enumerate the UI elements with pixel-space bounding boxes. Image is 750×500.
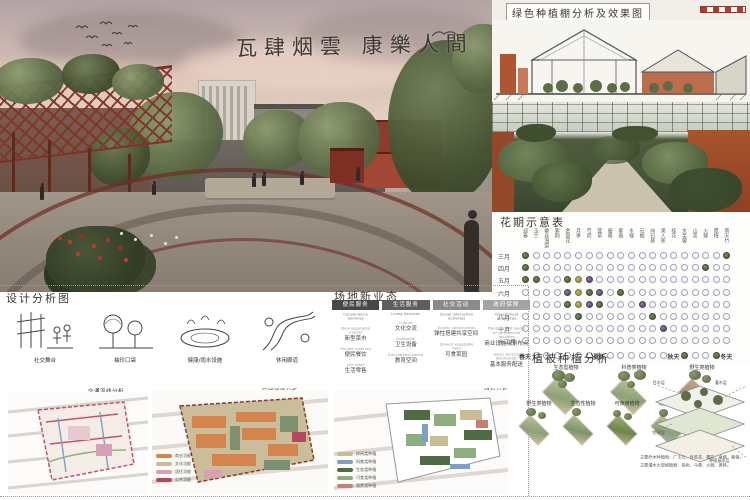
bloom-cell (533, 325, 540, 332)
bloom-cell (617, 276, 624, 283)
planting-axon: 野生类植物 (514, 400, 564, 436)
bloom-cell (596, 264, 603, 271)
bloom-cell (702, 313, 709, 320)
season-cell (649, 352, 656, 359)
bloom-cell (543, 301, 550, 308)
bloom-cell (596, 325, 603, 332)
axon-label: 野生类植物 (670, 364, 734, 371)
bloom-cell (564, 264, 571, 271)
bloom-cell (660, 264, 667, 271)
bloom-cell (681, 252, 688, 259)
bloom-cell (628, 264, 635, 271)
business-item-zh: 商业设施规划布点 (483, 341, 530, 348)
business-item-en: Educational space (386, 353, 426, 357)
bloom-cell (713, 289, 720, 296)
bloom-cell (596, 313, 603, 320)
bloom-cell (702, 289, 709, 296)
legend-swatch (337, 476, 353, 480)
planting-note-line: 主要灌木大规格植物：柏树、马桑、火棘、黄杨。 (640, 463, 738, 470)
bloom-cell (617, 337, 624, 344)
plant-name-label: 垂丝海棠 (543, 228, 549, 254)
bloom-cell (723, 276, 730, 283)
bloom-cell (607, 276, 614, 283)
bloom-cell (713, 313, 720, 320)
planting-axon: 可食用植物 (602, 400, 652, 436)
bloom-cell (649, 325, 656, 332)
bloom-cell (692, 252, 699, 259)
bloom-cell (723, 325, 730, 332)
bloom-cell (702, 264, 709, 271)
bloom-cell (713, 252, 720, 259)
bloom-cell (649, 264, 656, 271)
person (152, 184, 156, 195)
bloom-cell (723, 313, 730, 320)
bloom-cell (670, 301, 677, 308)
person (356, 170, 360, 181)
business-item-zh: 卫生设备 (382, 342, 429, 349)
season-cell (702, 352, 709, 359)
planting-axon: 生态型植物 (534, 364, 598, 400)
bloom-cell (713, 325, 720, 332)
season-label: 冬天 (720, 352, 732, 361)
bloom-cell (533, 301, 540, 308)
bloom-cell (670, 289, 677, 296)
bloom-cell (670, 252, 677, 259)
bloom-cell (617, 301, 624, 308)
bloom-cell (617, 252, 624, 259)
plant-name-label: 芍药 (586, 228, 592, 254)
bloom-cell (607, 252, 614, 259)
planting-axon: 生态性植物 (558, 400, 608, 436)
legend-item: 观赏类种植 (337, 482, 379, 490)
bloom-cell (649, 252, 656, 259)
legend-swatch (337, 484, 353, 488)
season-cell (692, 352, 699, 359)
bloom-cell (533, 289, 540, 296)
main-perspective-render: 瓦肆烟雲 康樂人間 (0, 0, 492, 292)
business-item-zh: 便民餐饮 (332, 352, 379, 359)
axon-label: 科普类植物 (602, 364, 666, 371)
business-item-zh: 可食菜园 (433, 352, 480, 359)
business-column: 政府保障Government guaranteePlanning and lay… (483, 300, 530, 375)
bloom-cell (564, 301, 571, 308)
bloom-cell (702, 325, 709, 332)
bloom-cell (649, 313, 656, 320)
bloom-cell (596, 301, 603, 308)
bloom-cell (543, 337, 550, 344)
bloom-cell (543, 313, 550, 320)
bloom-cell (649, 337, 656, 344)
flowering-grid: 迎春玉兰垂丝海棠紫荆金银花月季芍药萱草蜀葵紫薇木槿石榴向日葵美人蕉桂花木芙蓉山茶… (492, 212, 750, 364)
bloom-cell (596, 289, 603, 296)
bloom-cell (607, 313, 614, 320)
bloom-cell (723, 289, 730, 296)
bloom-cell (692, 325, 699, 332)
business-item-en: Elastic construction (436, 326, 476, 330)
bloom-cell (649, 301, 656, 308)
legend-item: 公共功能 (156, 476, 193, 484)
month-label: 四月 (498, 264, 510, 273)
bloom-cell (533, 313, 540, 320)
bloom-cell (670, 337, 677, 344)
legend-item: 休闲类种植 (337, 450, 379, 458)
bloom-cell (607, 264, 614, 271)
bloom-cell (692, 264, 699, 271)
legend-item: 文化功能 (156, 460, 193, 468)
bloom-cell (649, 276, 656, 283)
plant-name-label: 石榴 (639, 228, 645, 254)
legend-swatch (156, 462, 172, 466)
sketch-label: 袖珍口袋 (88, 356, 162, 364)
business-item-en: Culture (386, 321, 426, 325)
bloom-cell (533, 337, 540, 344)
bloom-cell (554, 325, 561, 332)
bloom-cell (586, 264, 593, 271)
plant-name-label: 美人蕉 (660, 228, 666, 254)
business-item-zh: 基本服务配送 (483, 362, 530, 369)
bloom-cell (554, 313, 561, 320)
bloom-cell (692, 276, 699, 283)
bloom-cell (723, 301, 730, 308)
sketch-label: 健康/雨水设施 (168, 356, 242, 364)
divider (0, 285, 528, 286)
analysis-sketch-pocket-park: 袖珍口袋 (88, 308, 162, 370)
legend-swatch (337, 468, 353, 472)
plan-circulation (8, 392, 148, 494)
month-label: 六月 (498, 289, 510, 298)
business-column-subtitle: Living Services (386, 312, 426, 316)
bloom-cell (575, 264, 582, 271)
plaza-stage (205, 178, 335, 198)
planting-notes: 主要乔木种植物：广玉兰、含笑花、樱花、垂柳、紫薇。 主要灌木大规格植物：柏树、马… (640, 455, 746, 471)
bloom-cell (639, 264, 646, 271)
business-item-en: Basic service distribution (486, 353, 526, 362)
business-item-zh: 弹性搭建共享空间 (433, 331, 480, 338)
bloom-cell (628, 252, 635, 259)
bloom-cell (681, 276, 688, 283)
person-foreground-head (468, 210, 477, 219)
bloom-cell (554, 301, 561, 308)
plant-name-label: 月季 (575, 228, 581, 254)
bloom-cell (586, 313, 593, 320)
bloom-cell (586, 325, 593, 332)
analysis-sketch-rain-garden: 健康/雨水设施 (168, 308, 242, 370)
bloom-cell (586, 289, 593, 296)
plant-name-label: 紫薇 (617, 228, 623, 254)
bloom-cell (543, 264, 550, 271)
bloom-cell (575, 313, 582, 320)
bloom-cell (713, 264, 720, 271)
bloom-cell (543, 276, 550, 283)
legend-swatch (337, 460, 353, 464)
season-cell (713, 352, 720, 359)
analysis-sketch-path: 休闲廊道 (250, 308, 324, 370)
bloom-cell (628, 289, 635, 296)
bloom-cell (575, 337, 582, 344)
design-presentation-board: 瓦肆烟雲 康樂人間 绿色种植棚分析及效果图 (0, 0, 750, 500)
bloom-cell (596, 276, 603, 283)
bloom-cell (723, 252, 730, 259)
bloom-cell (554, 289, 561, 296)
bloom-cell (607, 301, 614, 308)
bloom-cell (586, 252, 593, 259)
bloom-cell (639, 276, 646, 283)
scale-bar (700, 6, 746, 13)
business-item-zh: 教育空间 (382, 358, 429, 365)
business-table: 便民服务Convenience ServicesNew vegetable ma… (332, 300, 530, 375)
plant-name-label: 木槿 (628, 228, 634, 254)
bloom-cell (639, 289, 646, 296)
business-column: 社交活动Social interaction activitiesElastic… (433, 300, 480, 375)
bloom-cell (564, 325, 571, 332)
bloom-cell (575, 276, 582, 283)
plant-name-label: 南天竹 (723, 228, 729, 254)
business-item-zh: 新型菜市 (332, 336, 379, 343)
legend-swatch (156, 478, 172, 482)
plant-name-label: 萱草 (596, 228, 602, 254)
legend-label: 商业功能 (175, 453, 191, 458)
bloom-cell (554, 276, 561, 283)
axon-label: 生态型植物 (534, 364, 598, 371)
axon-label: 可食用植物 (602, 400, 652, 407)
analysis-sketch-stage: 社交舞台 (8, 308, 82, 370)
doves (120, 232, 123, 235)
business-column-header: 生活服务 (382, 300, 429, 310)
bloom-cell (628, 276, 635, 283)
plant-name-label: 迎春 (522, 228, 528, 254)
axon-label: 生态性植物 (558, 400, 608, 407)
bloom-cell (660, 325, 667, 332)
bloom-cell (575, 252, 582, 259)
bloom-cell (564, 337, 571, 344)
bird-flock-icon (72, 20, 152, 54)
plant-name-label: 玉兰 (533, 228, 539, 254)
bloom-cell (575, 325, 582, 332)
business-item-en: Shared vegetable field (436, 343, 476, 352)
bloom-cell (564, 276, 571, 283)
bloom-cell (617, 264, 624, 271)
business-column-subtitle: Social interaction activities (436, 313, 476, 322)
axon-label: 野生类植物 (514, 400, 564, 407)
bloom-cell (533, 252, 540, 259)
bloom-cell (628, 337, 635, 344)
bloom-cell (660, 252, 667, 259)
bloom-cell (554, 264, 561, 271)
plant-name-label: 蜀葵 (607, 228, 613, 254)
plant-name-label: 山茶 (692, 228, 698, 254)
bloom-cell (586, 301, 593, 308)
plant-name-label: 金银花 (564, 228, 570, 254)
legend-label: 休闲类种植 (356, 451, 376, 456)
business-item-en: Sanitation (386, 337, 426, 341)
bloom-cell (607, 325, 614, 332)
bloom-cell (723, 264, 730, 271)
sketch-label: 休闲廊道 (250, 356, 324, 364)
bloom-cell (692, 313, 699, 320)
business-column-header: 社交活动 (433, 300, 480, 310)
bloom-cell (639, 313, 646, 320)
bloom-cell (628, 301, 635, 308)
bloom-cell (533, 264, 540, 271)
person-foreground (464, 220, 479, 292)
bloom-cell (639, 337, 646, 344)
plant-name-label: 腊梅 (713, 228, 719, 254)
bloom-cell (596, 252, 603, 259)
season-cell (681, 352, 688, 359)
bloom-cell (586, 276, 593, 283)
bloom-cell (681, 301, 688, 308)
business-item-en: Planning and layout of commercial facili… (486, 327, 526, 340)
bloom-cell (628, 325, 635, 332)
person (252, 176, 256, 187)
business-column: 便民服务Convenience ServicesNew vegetable ma… (332, 300, 379, 375)
bloom-cell (713, 276, 720, 283)
bloom-cell (681, 337, 688, 344)
bloom-cell (660, 337, 667, 344)
legend-item: 可食类种植 (337, 474, 379, 482)
axon-layer-label: 地被层 (653, 430, 665, 435)
bloom-cell (522, 276, 529, 283)
bloom-cell (639, 252, 646, 259)
bloom-cell (660, 301, 667, 308)
legend-label: 生态类种植 (356, 467, 376, 472)
sketch-label: 社交舞台 (8, 356, 82, 364)
bloom-cell (702, 252, 709, 259)
bloom-cell (713, 337, 720, 344)
bloom-cell (564, 289, 571, 296)
bloom-cell (617, 313, 624, 320)
plan2-legend: 商业功能文化功能居住功能公共功能 (156, 452, 193, 484)
legend-label: 居住功能 (175, 469, 191, 474)
bloom-cell (543, 325, 550, 332)
analysis-title: 设计分析图 (6, 290, 71, 306)
bloom-cell (564, 313, 571, 320)
bloom-cell (681, 289, 688, 296)
bloom-cell (681, 313, 688, 320)
legend-item: 商业功能 (156, 452, 193, 460)
hanging-vines (612, 126, 658, 142)
business-column-subtitle: Convenience Services (336, 313, 376, 322)
month-label: 三月 (498, 252, 510, 261)
legend-label: 科普类种植 (356, 459, 376, 464)
bloom-cell (681, 264, 688, 271)
legend-item: 生态类种植 (337, 466, 379, 474)
bloom-cell (607, 337, 614, 344)
bloom-cell (617, 325, 624, 332)
person (262, 175, 266, 186)
plant-name-label: 木芙蓉 (681, 228, 687, 254)
bloom-cell (543, 289, 550, 296)
bloom-cell (596, 337, 603, 344)
bloom-cell (617, 289, 624, 296)
business-column: 生活服务Living ServicesCulture文化交流Sanitation… (382, 300, 429, 375)
axon-layer-label: 灌木层 (715, 380, 727, 385)
legend-label: 文化功能 (175, 461, 191, 466)
plan3-legend: 休闲类种植科普类种植生态类种植可食类种植观赏类种植 (337, 450, 379, 490)
business-column-subtitle: Government guarantee (486, 313, 526, 322)
greenhouse-section-drawing (492, 20, 750, 102)
bloom-cell (660, 276, 667, 283)
bloom-cell (543, 252, 550, 259)
bloom-cell (649, 289, 656, 296)
bloom-cell (660, 289, 667, 296)
business-item-en: Private catering (336, 347, 376, 351)
flowering-schedule-table: 花期示意表 迎春玉兰垂丝海棠紫荆金银花月季芍药萱草蜀葵紫薇木槿石榴向日葵美人蕉桂… (492, 212, 750, 364)
bloom-cell (554, 337, 561, 344)
season-cell (660, 352, 667, 359)
bloom-cell (681, 325, 688, 332)
season-label: 秋天 (667, 352, 679, 361)
legend-swatch (156, 470, 172, 474)
legend-label: 观赏类种植 (356, 483, 376, 488)
business-item-zh: 文化交流 (382, 326, 429, 333)
person (40, 186, 44, 200)
board-title-calligraphy: 瓦肆烟雲 康樂人間 (236, 28, 474, 63)
bloom-cell (670, 276, 677, 283)
season-cell (639, 352, 646, 359)
business-item-en: Life retail (336, 363, 376, 367)
bloom-cell (628, 313, 635, 320)
legend-swatch (156, 454, 172, 458)
bloom-cell (522, 252, 529, 259)
legend-item: 科普类种植 (337, 458, 379, 466)
bloom-cell (670, 325, 677, 332)
planting-note-line: 主要乔木种植物：广玉兰、含笑花、樱花、垂柳、紫薇。 (640, 455, 738, 462)
bloom-cell (564, 252, 571, 259)
bloom-cell (575, 301, 582, 308)
bloom-cell (713, 301, 720, 308)
person (300, 174, 304, 185)
bloom-cell (554, 252, 561, 259)
bloom-cell (575, 289, 582, 296)
red-flowers (58, 236, 62, 240)
plant-name-label: 紫荆 (554, 228, 560, 254)
business-column-header: 政府保障 (483, 300, 530, 310)
business-item-zh: 生活零售 (332, 368, 379, 375)
bloom-cell (692, 301, 699, 308)
bloom-cell (702, 337, 709, 344)
legend-label: 可食类种植 (356, 475, 376, 480)
business-column-header: 便民服务 (332, 300, 379, 310)
bloom-cell (702, 301, 709, 308)
axon-layer-label: 乔木层 (653, 380, 665, 385)
legend-item: 居住功能 (156, 468, 193, 476)
bloom-cell (723, 337, 730, 344)
bloom-cell (639, 301, 646, 308)
greenhouse-interior-render (492, 102, 750, 212)
plant-name-label: 火棘 (702, 228, 708, 254)
bloom-cell (522, 264, 529, 271)
bloom-cell (692, 337, 699, 344)
legend-label: 公共功能 (175, 477, 191, 482)
plant-name-label: 桂花 (670, 228, 676, 254)
bloom-cell (670, 264, 677, 271)
bloom-cell (660, 313, 667, 320)
bloom-cell (692, 289, 699, 296)
season-cell (628, 352, 635, 359)
bloom-cell (607, 289, 614, 296)
divider (0, 496, 750, 497)
business-item-en: New vegetable market (336, 327, 376, 336)
bloom-cell (702, 276, 709, 283)
bloom-cell (670, 313, 677, 320)
bloom-cell (639, 325, 646, 332)
plant-name-label: 向日葵 (649, 228, 655, 254)
legend-swatch (337, 452, 353, 456)
bloom-cell (586, 337, 593, 344)
bloom-cell (533, 276, 540, 283)
season-cell (617, 352, 624, 359)
